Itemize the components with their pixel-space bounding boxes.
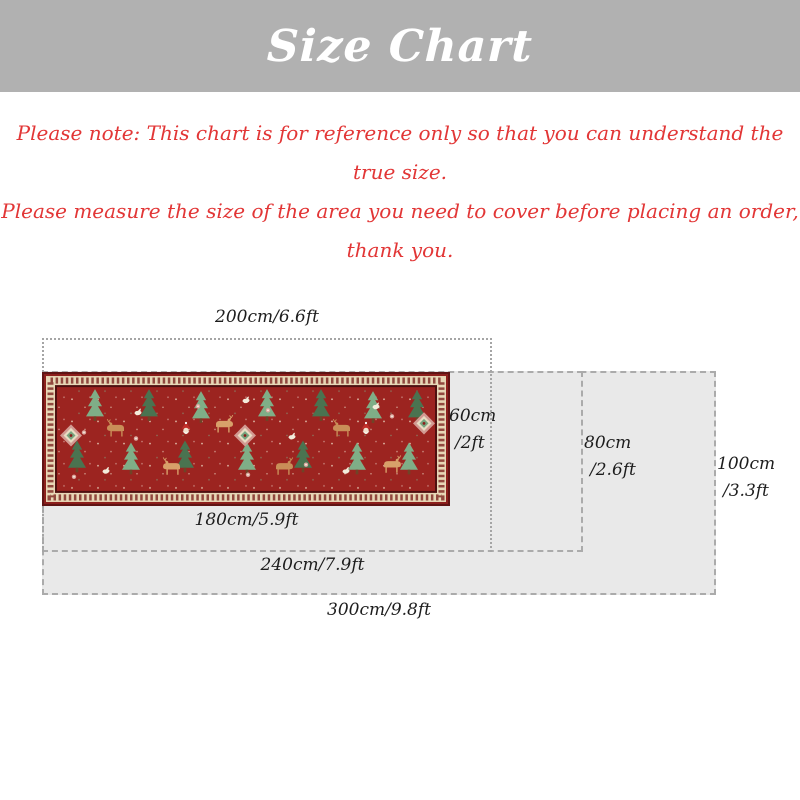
label-60cm-cm: 60cm <box>449 403 496 430</box>
label-100cm-ft: /3.3ft <box>717 478 775 505</box>
size-chart-page: Size Chart Please note: This chart is fo… <box>0 0 800 800</box>
rug-image <box>42 372 450 506</box>
label-240cm: 240cm/7.9ft <box>42 554 583 576</box>
label-180cm: 180cm/5.9ft <box>43 509 450 531</box>
label-60cm-ft: /2ft <box>449 430 496 457</box>
label-60cm: 60cm /2ft <box>449 403 496 457</box>
label-200cm: 200cm/6.6ft <box>42 306 492 328</box>
label-80cm: 80cm /2.6ft <box>584 430 636 484</box>
label-80cm-ft: /2.6ft <box>584 457 636 484</box>
size-diagram: 200cm/6.6ft 180cm/5.9ft 240cm/7.9ft 300c… <box>0 0 800 800</box>
label-300cm: 300cm/9.8ft <box>42 599 716 621</box>
rug-graphic <box>42 372 450 506</box>
label-100cm: 100cm /3.3ft <box>717 451 775 505</box>
label-80cm-cm: 80cm <box>584 430 636 457</box>
label-100cm-cm: 100cm <box>717 451 775 478</box>
